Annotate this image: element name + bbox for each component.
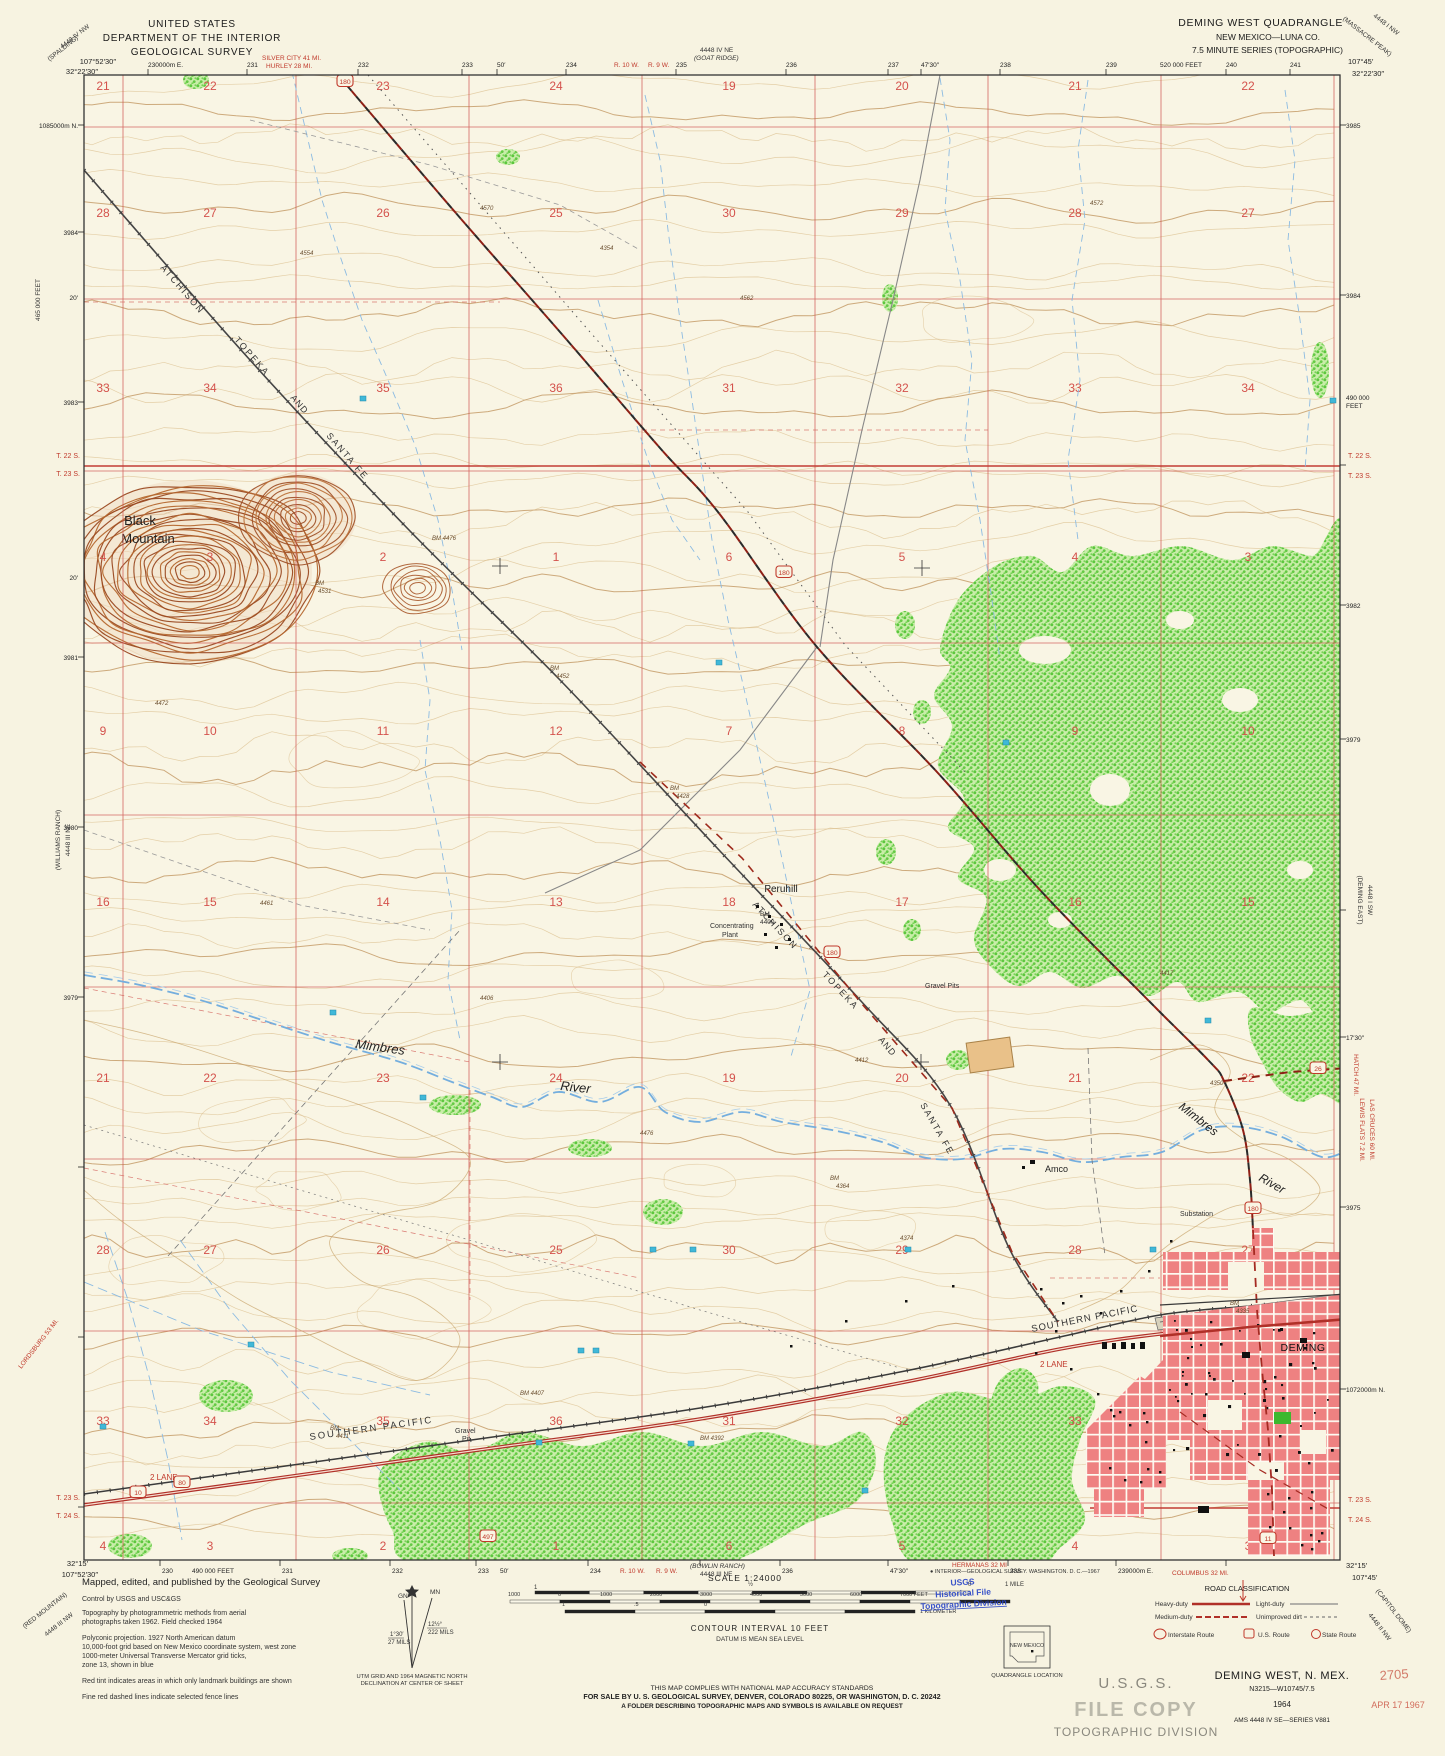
- svg-text:32: 32: [895, 1414, 909, 1428]
- svg-text:25: 25: [549, 1243, 563, 1257]
- svg-text:AMS 4448 IV SE—SERIES V881: AMS 4448 IV SE—SERIES V881: [1234, 1717, 1330, 1724]
- svg-text:5: 5: [899, 1539, 906, 1553]
- svg-text:4531: 4531: [318, 589, 331, 595]
- svg-text:Interstate Route: Interstate Route: [1168, 1632, 1215, 1639]
- svg-text:32°22′30″: 32°22′30″: [66, 67, 98, 76]
- svg-text:34: 34: [1241, 381, 1255, 395]
- svg-text:2000: 2000: [650, 1592, 662, 1598]
- svg-text:State Route: State Route: [1322, 1632, 1357, 1639]
- svg-text:180: 180: [778, 570, 790, 577]
- svg-text:CONTOUR INTERVAL 10 FEET: CONTOUR INTERVAL 10 FEET: [691, 1624, 829, 1633]
- svg-text:27: 27: [203, 206, 217, 220]
- svg-text:DEMING WEST, N. MEX.: DEMING WEST, N. MEX.: [1215, 1670, 1350, 1682]
- svg-text:17: 17: [895, 895, 909, 909]
- svg-text:Red tint indicates areas in wh: Red tint indicates areas in which only l…: [82, 1678, 292, 1685]
- svg-text:20: 20: [895, 1071, 909, 1085]
- svg-text:6: 6: [726, 550, 733, 564]
- svg-text:0: 0: [558, 1592, 561, 1598]
- svg-text:520 000 FEET: 520 000 FEET: [1160, 62, 1202, 69]
- svg-text:16: 16: [96, 895, 110, 909]
- svg-text:47′30″: 47′30″: [890, 1568, 909, 1575]
- svg-text:20′: 20′: [70, 575, 79, 582]
- svg-text:4572: 4572: [1090, 201, 1104, 207]
- svg-text:FOR SALE BY U. S. GEOLOGICAL S: FOR SALE BY U. S. GEOLOGICAL SURVEY, DEN…: [583, 1692, 940, 1701]
- svg-text:30: 30: [722, 206, 736, 220]
- svg-text:26: 26: [1314, 1066, 1322, 1073]
- svg-text:50′: 50′: [497, 62, 506, 69]
- svg-text:26: 26: [376, 206, 390, 220]
- svg-text:50′: 50′: [500, 1568, 509, 1575]
- svg-text:3: 3: [207, 550, 214, 564]
- svg-text:236: 236: [782, 1568, 793, 1575]
- svg-text:34: 34: [203, 1414, 217, 1428]
- svg-text:15: 15: [203, 895, 217, 909]
- svg-text:1964: 1964: [1273, 1700, 1291, 1709]
- svg-text:9: 9: [100, 724, 107, 738]
- svg-text:Topography by photogrammetric: Topography by photogrammetric methods fr…: [82, 1610, 247, 1617]
- svg-text:3983: 3983: [64, 400, 79, 407]
- svg-text:HURLEY 28 MI.: HURLEY 28 MI.: [266, 63, 312, 70]
- svg-text:GN: GN: [398, 1593, 408, 1600]
- svg-text:232: 232: [358, 62, 369, 69]
- svg-text:COLUMBUS 32 MI.: COLUMBUS 32 MI.: [1172, 1570, 1229, 1577]
- svg-text:(WILLIAMS RANCH): (WILLIAMS RANCH): [55, 810, 62, 870]
- svg-text:4354: 4354: [600, 246, 614, 252]
- svg-text:3981: 3981: [64, 655, 79, 662]
- svg-text:BM 4407: BM 4407: [520, 1391, 545, 1397]
- svg-text:4476: 4476: [640, 1131, 654, 1137]
- svg-text:1: 1: [553, 550, 560, 564]
- svg-text:(DEMING EAST): (DEMING EAST): [1356, 875, 1363, 924]
- svg-text:15: 15: [1241, 895, 1255, 909]
- svg-text:4448 IV NE: 4448 IV NE: [700, 47, 734, 54]
- svg-text:4412: 4412: [855, 1058, 869, 1064]
- svg-text:Amco: Amco: [1045, 1164, 1068, 1174]
- svg-text:4000: 4000: [750, 1592, 762, 1598]
- svg-text:33: 33: [96, 381, 110, 395]
- svg-text:34: 34: [203, 381, 217, 395]
- svg-text:13: 13: [549, 895, 563, 909]
- svg-text:33: 33: [1068, 1414, 1082, 1428]
- svg-text:22: 22: [203, 79, 217, 93]
- svg-text:3979: 3979: [64, 995, 79, 1002]
- svg-text:photographs taken 1962. Field: photographs taken 1962. Field checked 19…: [82, 1619, 222, 1626]
- svg-text:3: 3: [1245, 550, 1252, 564]
- svg-text:BM 4476: BM 4476: [432, 536, 457, 542]
- svg-text:239000m E.: 239000m E.: [1118, 1568, 1153, 1575]
- svg-text:10: 10: [134, 1490, 142, 1497]
- svg-text:230000m E.: 230000m E.: [148, 62, 183, 69]
- svg-text:35: 35: [376, 381, 390, 395]
- svg-text:4562: 4562: [740, 296, 754, 302]
- svg-text:180: 180: [339, 79, 351, 86]
- svg-text:UNITED STATES: UNITED STATES: [148, 19, 236, 30]
- svg-text:233: 233: [462, 62, 473, 69]
- svg-text:12: 12: [549, 724, 563, 738]
- svg-text:1000-meter Universal Transvers: 1000-meter Universal Transverse Mercator…: [82, 1653, 247, 1660]
- svg-text:(GOAT RIDGE): (GOAT RIDGE): [694, 55, 739, 62]
- svg-text:16: 16: [1068, 895, 1082, 909]
- svg-text:BM: BM: [760, 911, 770, 918]
- svg-text:4472: 4472: [155, 701, 169, 707]
- svg-text:N3215—W10745/7.5: N3215—W10745/7.5: [1249, 1686, 1314, 1693]
- svg-text:3: 3: [207, 1539, 214, 1553]
- svg-text:DATUM IS MEAN SEA LEVEL: DATUM IS MEAN SEA LEVEL: [716, 1636, 804, 1643]
- svg-text:240: 240: [1226, 62, 1237, 69]
- svg-text:Plant: Plant: [722, 932, 738, 939]
- svg-text:234: 234: [590, 1568, 601, 1575]
- svg-text:490 000 FEET: 490 000 FEET: [192, 1568, 234, 1575]
- svg-text:22: 22: [203, 1071, 217, 1085]
- svg-text:0: 0: [704, 1602, 707, 1608]
- svg-text:6000: 6000: [850, 1592, 862, 1598]
- svg-text:28: 28: [96, 1243, 110, 1257]
- svg-text:Substation: Substation: [1180, 1211, 1213, 1218]
- svg-text:12½°: 12½°: [428, 1621, 443, 1628]
- svg-text:DEMING: DEMING: [1281, 1342, 1326, 1354]
- svg-text:236: 236: [786, 62, 797, 69]
- svg-text:R. 10 W.: R. 10 W.: [614, 62, 639, 69]
- svg-text:17′30″: 17′30″: [1346, 1035, 1365, 1042]
- svg-text:TOPOGRAPHIC DIVISION: TOPOGRAPHIC DIVISION: [1054, 1725, 1218, 1739]
- svg-text:U.S.G.S.: U.S.G.S.: [1098, 1675, 1173, 1692]
- svg-text:A FOLDER DESCRIBING TOPOGRAPHI: A FOLDER DESCRIBING TOPOGRAPHIC MAPS AND…: [621, 1703, 903, 1710]
- svg-text:LAS CRUCES 60 MI.: LAS CRUCES 60 MI.: [1368, 1099, 1375, 1161]
- svg-text:107°45′: 107°45′: [1352, 1573, 1378, 1582]
- svg-text:1: 1: [553, 1539, 560, 1553]
- svg-text:NEW MEXICO—LUNA CO.: NEW MEXICO—LUNA CO.: [1216, 32, 1320, 42]
- svg-text:36: 36: [549, 381, 563, 395]
- svg-text:Fine red dashed lines indicate: Fine red dashed lines indicate selected …: [82, 1694, 239, 1701]
- svg-text:T. 23 S.: T. 23 S.: [1348, 1497, 1372, 1504]
- svg-text:3975: 3975: [1346, 1205, 1361, 1212]
- svg-text:18: 18: [722, 895, 736, 909]
- svg-text:28: 28: [96, 206, 110, 220]
- svg-text:30: 30: [722, 1243, 736, 1257]
- svg-text:5000: 5000: [800, 1592, 812, 1598]
- svg-text:11: 11: [377, 724, 390, 738]
- svg-text:3979: 3979: [1346, 737, 1361, 744]
- svg-text:25: 25: [549, 206, 563, 220]
- svg-text:NEW MEXICO: NEW MEXICO: [1010, 1643, 1044, 1649]
- svg-text:BM: BM: [315, 581, 324, 587]
- svg-text:2 LANE: 2 LANE: [150, 1473, 178, 1482]
- svg-text:1: 1: [562, 1602, 565, 1608]
- svg-text:23: 23: [376, 79, 390, 93]
- svg-text:2 LANE: 2 LANE: [1040, 1360, 1068, 1369]
- svg-text:234: 234: [566, 62, 577, 69]
- svg-text:6: 6: [726, 1539, 733, 1553]
- svg-text:4364: 4364: [836, 1184, 850, 1190]
- svg-text:180: 180: [826, 950, 838, 957]
- svg-text:Medium-duty: Medium-duty: [1155, 1614, 1193, 1621]
- svg-text:4448 III NE: 4448 III NE: [65, 823, 72, 856]
- svg-text:28: 28: [1068, 1243, 1082, 1257]
- svg-text:Concentrating: Concentrating: [710, 923, 754, 930]
- svg-text:1 MILE: 1 MILE: [1005, 1582, 1024, 1588]
- svg-text:3982: 3982: [1346, 603, 1361, 610]
- svg-text:FEET: FEET: [1346, 403, 1363, 410]
- svg-text:APR 17 1967: APR 17 1967: [1371, 1700, 1425, 1710]
- svg-text:4448 I SW: 4448 I SW: [1366, 885, 1373, 916]
- svg-text:241: 241: [1290, 62, 1301, 69]
- svg-text:31: 31: [722, 381, 736, 395]
- svg-text:UTM GRID AND 1964 MAGNETIC NOR: UTM GRID AND 1964 MAGNETIC NORTH: [356, 1674, 467, 1680]
- svg-text:zone 13, shown in blue: zone 13, shown in blue: [82, 1662, 154, 1669]
- svg-text:231: 231: [282, 1568, 293, 1575]
- svg-text:19: 19: [722, 1071, 736, 1085]
- svg-text:4570: 4570: [480, 206, 494, 212]
- svg-text:465 000 FEET: 465 000 FEET: [35, 279, 42, 321]
- svg-text:GEOLOGICAL SURVEY: GEOLOGICAL SURVEY: [131, 47, 254, 58]
- svg-text:SILVER CITY 41 MI.: SILVER CITY 41 MI.: [262, 55, 321, 62]
- svg-text:4374: 4374: [900, 1236, 914, 1242]
- svg-text:4452: 4452: [556, 674, 570, 680]
- svg-text:T. 23 S.: T. 23 S.: [56, 1495, 80, 1502]
- svg-text:21: 21: [96, 1071, 110, 1085]
- svg-text:20′: 20′: [70, 295, 79, 302]
- svg-text:.5: .5: [634, 1602, 639, 1608]
- svg-text:27: 27: [1241, 206, 1255, 220]
- svg-text:238: 238: [1000, 62, 1011, 69]
- svg-text:Pit: Pit: [462, 1436, 470, 1443]
- svg-text:T. 22 S.: T. 22 S.: [56, 453, 80, 460]
- svg-text:MN: MN: [430, 1589, 440, 1596]
- svg-text:222 MILS: 222 MILS: [428, 1630, 454, 1636]
- svg-text:27 MILS: 27 MILS: [388, 1640, 410, 1646]
- svg-text:SCALE 1:24000: SCALE 1:24000: [708, 1573, 782, 1583]
- svg-text:2705: 2705: [1379, 1666, 1409, 1683]
- svg-text:3984: 3984: [1346, 293, 1361, 300]
- svg-text:230: 230: [162, 1568, 173, 1575]
- svg-text:7.5 MINUTE SERIES (TOPOGRAPHIC: 7.5 MINUTE SERIES (TOPOGRAPHIC): [1192, 45, 1343, 55]
- svg-text:1072000m N.: 1072000m N.: [1346, 1387, 1385, 1394]
- svg-text:T. 22 S.: T. 22 S.: [1348, 453, 1372, 460]
- svg-text:233: 233: [478, 1568, 489, 1575]
- svg-text:10: 10: [1241, 724, 1255, 738]
- svg-text:THIS MAP COMPLIES WITH NATIONA: THIS MAP COMPLIES WITH NATIONAL MAP ACCU…: [651, 1685, 874, 1692]
- svg-text:4411: 4411: [336, 1434, 349, 1440]
- svg-text:BM: BM: [330, 1426, 339, 1432]
- svg-text:(BOWLIN RANCH): (BOWLIN RANCH): [690, 1563, 745, 1570]
- svg-text:11: 11: [1264, 1536, 1271, 1543]
- svg-text:5: 5: [899, 550, 906, 564]
- svg-text:22: 22: [1241, 79, 1255, 93]
- svg-text:23: 23: [376, 1071, 390, 1085]
- svg-text:Control by USGS and USC&GS: Control by USGS and USC&GS: [82, 1596, 181, 1603]
- svg-text:T. 24 S.: T. 24 S.: [56, 1513, 80, 1520]
- svg-text:3985: 3985: [1346, 123, 1361, 130]
- svg-text:10,000-foot grid based on New: 10,000-foot grid based on New Mexico coo…: [82, 1644, 296, 1651]
- svg-text:24: 24: [549, 79, 563, 93]
- svg-text:Mapped, edited, and published: Mapped, edited, and published by the Geo…: [82, 1577, 320, 1588]
- svg-text:R. 9 W.: R. 9 W.: [656, 1568, 678, 1575]
- svg-text:Gravel: Gravel: [455, 1428, 476, 1435]
- svg-text:29: 29: [895, 206, 909, 220]
- svg-text:14: 14: [376, 895, 390, 909]
- svg-text:2: 2: [380, 550, 387, 564]
- svg-text:107°45′: 107°45′: [1348, 57, 1374, 66]
- svg-text:DECLINATION AT CENTER OF SHEET: DECLINATION AT CENTER OF SHEET: [361, 1681, 464, 1687]
- svg-text:32: 32: [895, 381, 909, 395]
- svg-text:T. 24 S.: T. 24 S.: [1348, 1517, 1372, 1524]
- svg-text:● INTERIOR—GEOLOGICAL SURVEY.: ● INTERIOR—GEOLOGICAL SURVEY. WASHINGTON…: [930, 1569, 1100, 1575]
- svg-text:21: 21: [1068, 1071, 1082, 1085]
- svg-text:QUADRANGLE LOCATION: QUADRANGLE LOCATION: [991, 1673, 1062, 1679]
- svg-text:HERMANAS 32 MI: HERMANAS 32 MI: [952, 1562, 1007, 1569]
- svg-text:232: 232: [392, 1568, 403, 1575]
- svg-text:490 000: 490 000: [1346, 395, 1370, 402]
- svg-text:4: 4: [1072, 550, 1079, 564]
- svg-text:Polyconic projection. 1927 No: Polyconic projection. 1927 North America…: [82, 1635, 235, 1642]
- svg-text:Heavy-duty: Heavy-duty: [1155, 1601, 1189, 1608]
- svg-text:4417: 4417: [1160, 971, 1174, 977]
- svg-text:R. 10 W.: R. 10 W.: [620, 1568, 645, 1575]
- svg-text:28: 28: [1068, 206, 1082, 220]
- svg-text:1000: 1000: [508, 1592, 520, 1598]
- svg-text:20: 20: [895, 79, 909, 93]
- svg-text:½: ½: [748, 1581, 753, 1588]
- svg-text:HATCH 47 MI.: HATCH 47 MI.: [1352, 1054, 1359, 1096]
- svg-text:BM: BM: [830, 1176, 839, 1182]
- svg-text:32°15′: 32°15′: [67, 1559, 89, 1568]
- svg-text:DEPARTMENT OF THE INTERIOR: DEPARTMENT OF THE INTERIOR: [103, 33, 281, 44]
- svg-text:Light-duty: Light-duty: [1256, 1601, 1285, 1608]
- svg-text:497: 497: [482, 1534, 494, 1541]
- svg-text:BM: BM: [670, 786, 679, 792]
- svg-text:237: 237: [888, 62, 899, 69]
- svg-text:1085000m N.: 1085000m N.: [39, 123, 78, 130]
- svg-text:4428: 4428: [676, 794, 690, 800]
- svg-text:4461: 4461: [260, 901, 273, 907]
- svg-text:19: 19: [722, 79, 736, 93]
- svg-text:LEWIS FLATS 7.2 MI.: LEWIS FLATS 7.2 MI.: [1358, 1098, 1365, 1162]
- svg-text:4406: 4406: [480, 996, 494, 1002]
- svg-text:BM: BM: [1230, 1301, 1239, 1307]
- svg-text:T. 23 S.: T. 23 S.: [56, 471, 80, 478]
- svg-text:10: 10: [203, 724, 217, 738]
- svg-text:80: 80: [178, 1480, 186, 1487]
- svg-text:1000: 1000: [600, 1592, 612, 1598]
- svg-text:Peruhill: Peruhill: [764, 884, 797, 895]
- svg-text:R. 9 W.: R. 9 W.: [648, 62, 670, 69]
- svg-text:Gravel Pits: Gravel Pits: [925, 983, 960, 990]
- svg-text:107°52′30″: 107°52′30″: [80, 57, 117, 66]
- svg-text:3000: 3000: [700, 1592, 712, 1598]
- svg-text:27: 27: [203, 1243, 217, 1257]
- svg-text:2: 2: [380, 1539, 387, 1553]
- svg-text:Unimproved dirt: Unimproved dirt: [1256, 1614, 1302, 1621]
- svg-text:231: 231: [247, 62, 258, 69]
- svg-text:ROAD CLASSIFICATION: ROAD CLASSIFICATION: [1205, 1584, 1290, 1593]
- svg-text:4: 4: [1072, 1539, 1079, 1553]
- svg-text:47′30″: 47′30″: [921, 62, 940, 69]
- svg-text:9: 9: [1072, 724, 1079, 738]
- svg-text:4350: 4350: [1210, 1081, 1224, 1087]
- svg-text:7000 FEET: 7000 FEET: [900, 1592, 928, 1598]
- svg-text:U.S. Route: U.S. Route: [1258, 1632, 1290, 1639]
- svg-text:T. 23 S.: T. 23 S.: [1348, 473, 1372, 480]
- svg-text:1°30′: 1°30′: [390, 1632, 404, 1638]
- svg-text:4554: 4554: [300, 251, 314, 257]
- svg-text:26: 26: [376, 1243, 390, 1257]
- svg-text:180: 180: [1247, 1206, 1259, 1213]
- svg-text:Mountain: Mountain: [121, 531, 174, 546]
- svg-text:BM 4392: BM 4392: [700, 1436, 725, 1442]
- svg-text:USGS: USGS: [950, 1576, 975, 1587]
- svg-text:4400: 4400: [760, 919, 775, 926]
- svg-text:4335: 4335: [1236, 1309, 1250, 1315]
- svg-text:3984: 3984: [64, 230, 79, 237]
- svg-text:21: 21: [96, 79, 110, 93]
- svg-text:BM: BM: [550, 666, 559, 672]
- svg-text:32°22′30″: 32°22′30″: [1352, 69, 1384, 78]
- svg-text:4: 4: [100, 550, 107, 564]
- svg-text:Black: Black: [124, 513, 156, 528]
- svg-text:21: 21: [1068, 79, 1082, 93]
- svg-text:235: 235: [676, 62, 687, 69]
- svg-text:239: 239: [1106, 62, 1117, 69]
- svg-text:7: 7: [726, 724, 733, 738]
- svg-text:4: 4: [100, 1539, 107, 1553]
- svg-text:DEMING WEST QUADRANGLE: DEMING WEST QUADRANGLE: [1178, 17, 1343, 29]
- svg-text:32°15′: 32°15′: [1346, 1561, 1368, 1570]
- svg-text:FILE COPY: FILE COPY: [1074, 1699, 1198, 1721]
